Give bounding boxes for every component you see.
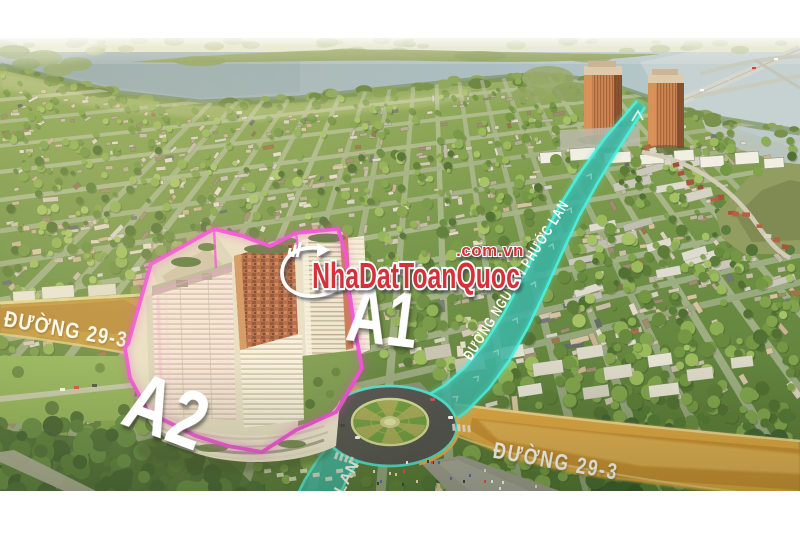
svg-text:NhaDatToanQuoc: NhaDatToanQuoc — [312, 255, 520, 296]
